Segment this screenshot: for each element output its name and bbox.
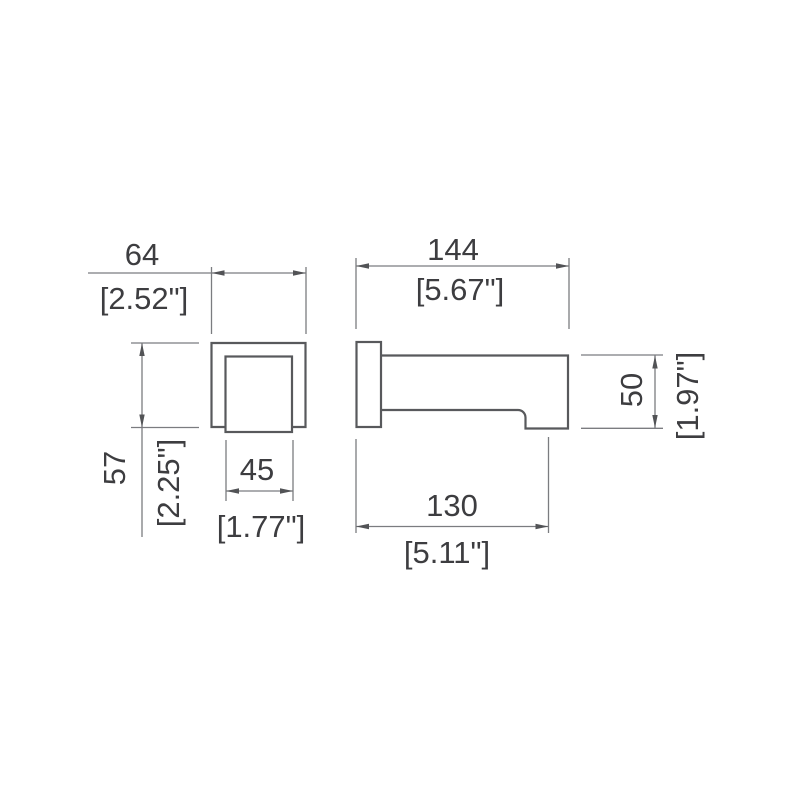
technical-drawing: 64 [2.52"] 57 [2.25"] 45 [1.77"] 144 [5.… <box>0 0 800 800</box>
dim-side-length-mm-label: 144 <box>427 232 479 267</box>
dim-inner-width-mm-label: 45 <box>240 452 274 487</box>
dim-front-height-mm-label: 57 <box>97 451 132 485</box>
dim-side-height-mm-label: 50 <box>614 373 649 407</box>
dim-inner-width-inch-label: [1.77"] <box>217 509 306 544</box>
dim-side-height-inch-label: [1.97"] <box>670 352 705 441</box>
drawing-canvas: 64 [2.52"] 57 [2.25"] 45 [1.77"] 144 [5.… <box>0 0 800 800</box>
dim-front-height-inch-label: [2.25"] <box>151 439 186 528</box>
dim-side-length-inch-label: [5.67"] <box>416 272 505 307</box>
dim-outlet-reach-mm-label: 130 <box>426 488 478 523</box>
dim-front-width-inch-label: [2.52"] <box>100 281 189 316</box>
dim-front-width-mm-label: 64 <box>125 237 159 272</box>
dim-outlet-reach-inch-label: [5.11"] <box>404 535 490 570</box>
